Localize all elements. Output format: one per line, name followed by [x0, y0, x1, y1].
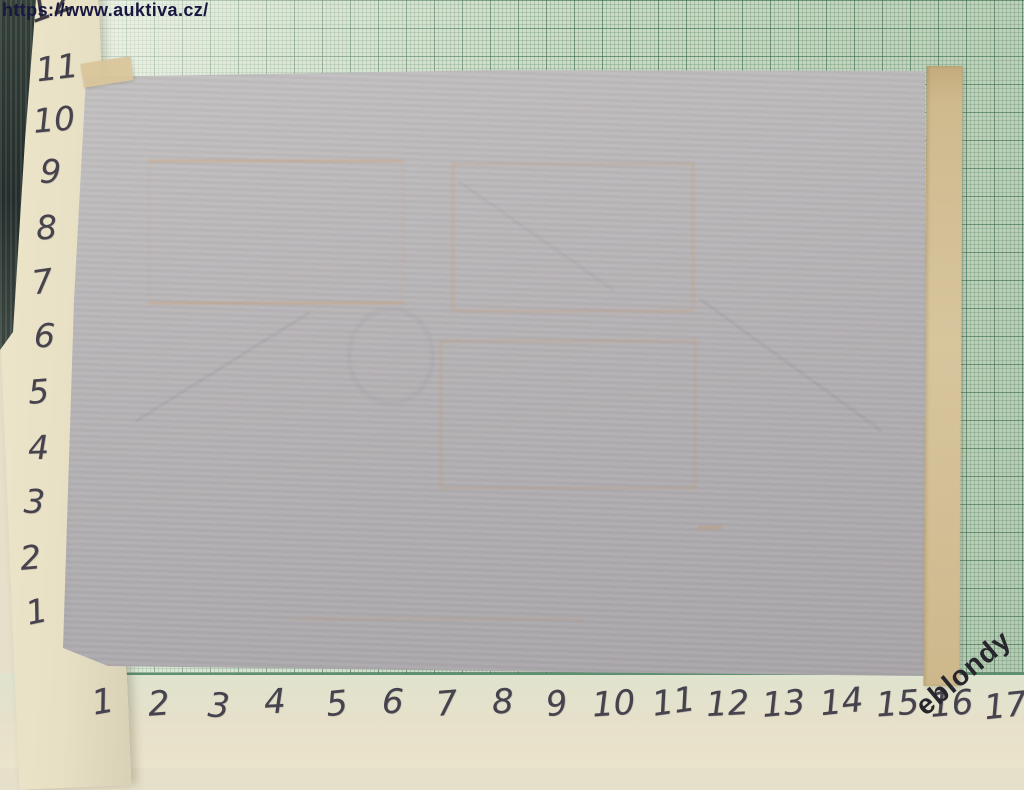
paper-crease-right [699, 298, 882, 432]
ruler-number-bottom-15: 15 [875, 683, 921, 726]
envelope-back-paper [0, 0, 1024, 768]
stamp-ghost-outline-left [148, 160, 404, 304]
ruler-number-bottom-2: 2 [147, 683, 171, 724]
ruler-number-bottom-10: 10 [591, 683, 637, 726]
ruler-number-bottom-4: 4 [263, 681, 287, 722]
ruler-number-left-9: 9 [39, 151, 62, 191]
ruler-number-left-10: 10 [31, 98, 76, 141]
ruler-number-left-2: 2 [18, 537, 42, 578]
tape-strip-right [923, 66, 962, 686]
ruler-number-bottom-6: 6 [381, 682, 404, 723]
ruler-number-bottom-5: 5 [324, 683, 350, 725]
auction-photo-page: { "watermarks": { "site_url": "https://w… [0, 0, 1024, 768]
ruler-number-bottom-14: 14 [818, 680, 865, 724]
ruler-number-bottom-17: 17 [982, 684, 1024, 728]
ruler-number-left-4: 4 [27, 428, 49, 468]
ruler-number-bottom-3: 3 [207, 685, 231, 726]
ruler-number-bottom-7: 7 [434, 683, 459, 725]
auktiva-url-watermark: https://www.auktiva.cz/ [2, 0, 209, 21]
ruler-number-bottom-13: 13 [760, 682, 807, 726]
ruler-number-left-3: 3 [23, 481, 46, 521]
orange-stain-trace [290, 618, 585, 620]
postmark-ghost-circle [348, 308, 434, 404]
ruler-number-left-6: 6 [33, 316, 55, 356]
ruler-number-bottom-11: 11 [649, 679, 697, 725]
stamp-ghost-outline-top-right [452, 163, 694, 312]
ruler-number-bottom-8: 8 [491, 682, 514, 723]
paper-crease-left [135, 312, 310, 422]
ruler-number-bottom-12: 12 [705, 683, 750, 725]
orange-stain-dash [698, 526, 722, 529]
ruler-number-left-8: 8 [35, 207, 58, 247]
ruler-number-left-11: 11 [34, 46, 80, 90]
stamp-ghost-outline-middle [440, 340, 696, 489]
ruler-number-left-5: 5 [27, 371, 51, 411]
